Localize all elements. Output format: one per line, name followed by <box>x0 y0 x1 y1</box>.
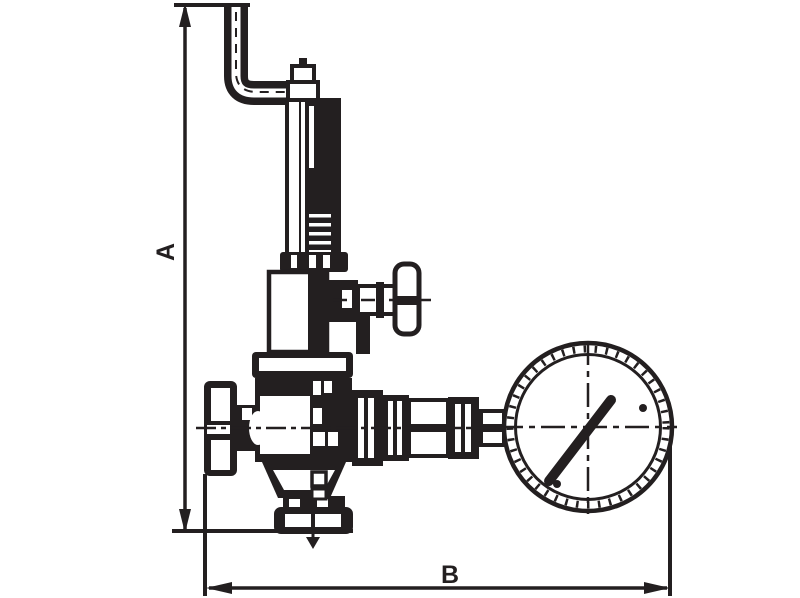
flow-arrow-icon <box>306 537 320 549</box>
dimension-label-b: B <box>441 561 459 589</box>
bonnet-flange <box>252 352 353 378</box>
outlet-flange <box>274 507 353 549</box>
arrow-left-icon <box>206 582 232 594</box>
arrow-right-icon <box>644 582 670 594</box>
dial-dot <box>639 404 647 412</box>
valve-body <box>249 378 352 510</box>
adjusting-cap <box>288 58 318 100</box>
valve-drawing: A B <box>0 0 800 598</box>
pressure-gauge <box>499 341 677 514</box>
drawing-canvas: A B <box>0 0 800 598</box>
needle-hub <box>553 480 561 488</box>
vent-pipe <box>236 7 292 93</box>
tee-handle <box>327 264 432 354</box>
dimension-label-a: A <box>152 243 180 261</box>
